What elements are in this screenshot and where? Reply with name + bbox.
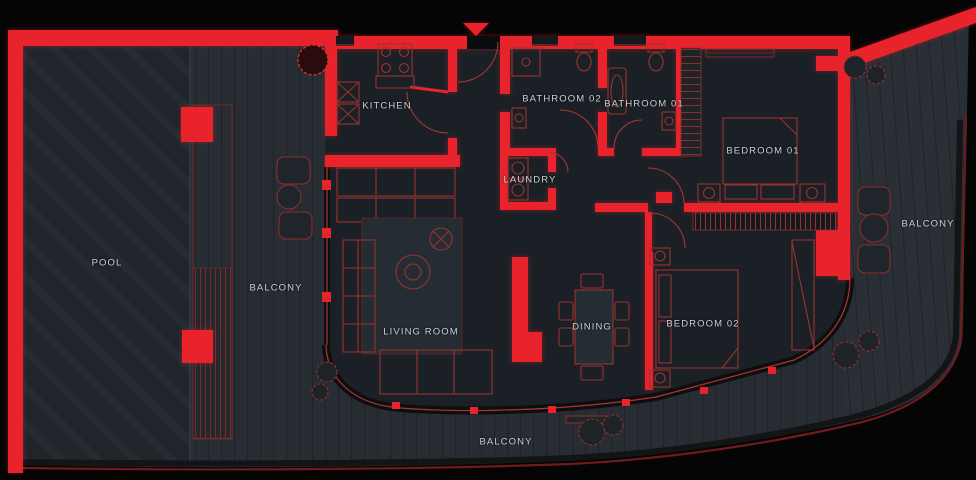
label-balcony-bottom: BALCONY xyxy=(479,437,532,448)
floor-plan-svg xyxy=(0,0,976,480)
plant-icon xyxy=(317,362,337,382)
label-bedroom-01: BEDROOM 01 xyxy=(726,146,799,157)
plant-icon xyxy=(844,56,866,78)
label-bedroom-02: BEDROOM 02 xyxy=(666,319,739,330)
label-laundry: LAUNDRY xyxy=(504,175,557,186)
site-border-top xyxy=(8,30,338,46)
label-pool: POOL xyxy=(92,258,123,269)
floor-plan: POOL BALCONY KITCHEN BATHROOM 02 BATHROO… xyxy=(0,0,976,480)
plant-icon xyxy=(298,45,328,75)
plant-icon xyxy=(867,66,885,84)
bedroom02-closet xyxy=(693,213,837,230)
plant-icon xyxy=(312,384,328,400)
label-balcony-left: BALCONY xyxy=(249,283,302,294)
label-bathroom-01: BATHROOM 01 xyxy=(604,99,684,110)
plant-icon xyxy=(579,419,605,445)
label-dining: DINING xyxy=(572,322,612,333)
label-kitchen: KITCHEN xyxy=(362,101,411,112)
east-red-block xyxy=(816,230,850,276)
plant-icon xyxy=(603,415,623,435)
label-bathroom-02: BATHROOM 02 xyxy=(522,94,602,105)
label-living-room: LIVING ROOM xyxy=(383,327,458,338)
entry-opening xyxy=(467,36,500,49)
plant-icon xyxy=(859,331,879,351)
entry-arrow-icon xyxy=(463,23,489,36)
label-balcony-right: BALCONY xyxy=(901,219,954,230)
site-border-left xyxy=(8,30,23,473)
plant-icon xyxy=(833,342,859,368)
